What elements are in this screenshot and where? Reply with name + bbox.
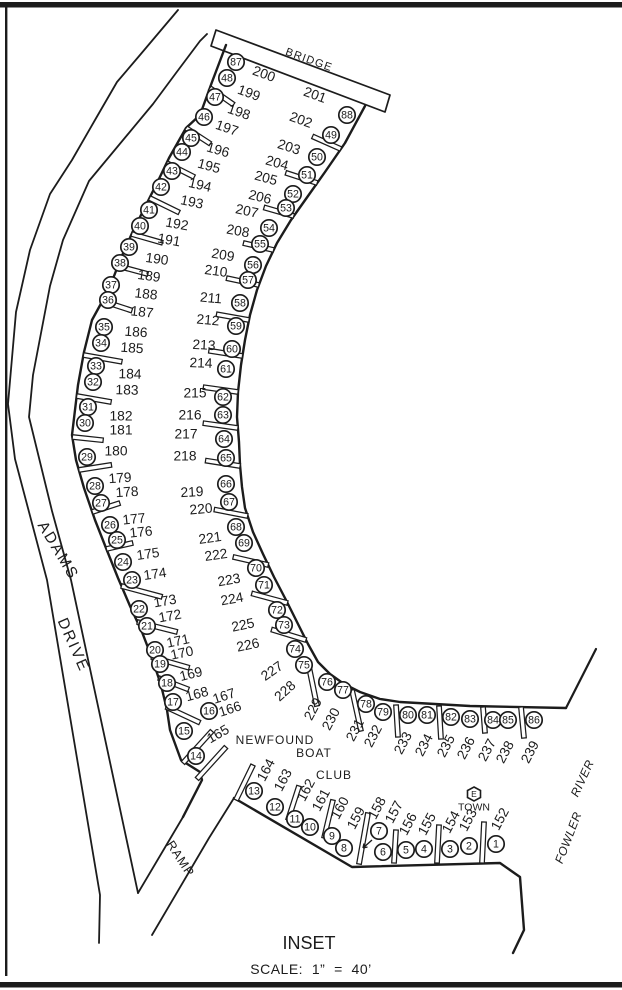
svg-text:68: 68: [230, 522, 242, 534]
svg-text:78: 78: [360, 699, 372, 711]
svg-text:58: 58: [234, 298, 246, 310]
svg-text:4: 4: [421, 844, 427, 856]
svg-text:16: 16: [203, 706, 215, 718]
svg-text:15: 15: [178, 726, 190, 738]
svg-text:CLUB: CLUB: [316, 768, 352, 782]
svg-text:28: 28: [89, 481, 101, 493]
svg-text:31: 31: [82, 402, 94, 414]
svg-text:77: 77: [337, 685, 349, 697]
svg-text:30: 30: [79, 418, 91, 430]
svg-text:214: 214: [189, 355, 213, 371]
svg-text:178: 178: [115, 484, 139, 501]
svg-text:43: 43: [166, 166, 178, 178]
svg-text:185: 185: [120, 340, 144, 357]
svg-text:180: 180: [104, 444, 127, 459]
svg-text:82: 82: [445, 712, 457, 724]
svg-text:12: 12: [269, 802, 281, 814]
svg-text:63: 63: [217, 410, 229, 422]
svg-text:36: 36: [102, 295, 114, 307]
svg-text:221: 221: [198, 529, 223, 547]
svg-text:69: 69: [238, 538, 250, 550]
svg-text:38: 38: [114, 258, 126, 270]
svg-text:86: 86: [528, 715, 540, 727]
svg-text:23: 23: [126, 575, 138, 587]
svg-text:50: 50: [311, 152, 323, 164]
svg-text:22: 22: [133, 604, 145, 616]
svg-text:72: 72: [271, 605, 283, 617]
svg-text:188: 188: [134, 285, 159, 302]
svg-text:83: 83: [464, 714, 476, 726]
svg-text:48: 48: [221, 73, 233, 85]
svg-text:79: 79: [377, 707, 389, 719]
svg-text:182: 182: [109, 409, 132, 424]
svg-text:183: 183: [115, 382, 139, 397]
svg-text:54: 54: [263, 223, 275, 235]
svg-text:212: 212: [196, 312, 220, 329]
svg-text:217: 217: [174, 427, 197, 442]
svg-text:59: 59: [230, 321, 242, 333]
svg-text:47: 47: [209, 92, 221, 104]
svg-text:17: 17: [167, 697, 179, 709]
svg-text:55: 55: [254, 239, 266, 251]
svg-text:14: 14: [190, 751, 202, 763]
svg-text:216: 216: [178, 408, 201, 423]
svg-text:52: 52: [287, 189, 299, 201]
svg-text:27: 27: [95, 498, 107, 510]
svg-text:33: 33: [90, 361, 102, 373]
svg-text:71: 71: [258, 580, 270, 592]
svg-text:85: 85: [502, 715, 514, 727]
svg-text:184: 184: [118, 366, 142, 381]
svg-text:60: 60: [226, 344, 238, 356]
svg-text:81: 81: [421, 710, 433, 722]
svg-text:218: 218: [173, 449, 196, 464]
svg-text:213: 213: [192, 337, 216, 353]
svg-text:187: 187: [130, 303, 154, 320]
svg-text:13: 13: [248, 786, 260, 798]
svg-text:6: 6: [380, 847, 386, 859]
svg-text:37: 37: [105, 280, 117, 292]
svg-text:181: 181: [109, 423, 132, 438]
svg-text:88: 88: [341, 110, 353, 122]
svg-text:80: 80: [402, 710, 414, 722]
svg-text:64: 64: [218, 434, 230, 446]
svg-text:1: 1: [493, 839, 499, 851]
svg-text:211: 211: [199, 290, 222, 307]
svg-text:3: 3: [447, 844, 453, 856]
svg-text:19: 19: [154, 659, 166, 671]
svg-text:76: 76: [321, 677, 333, 689]
svg-text:73: 73: [278, 620, 290, 632]
svg-text:70: 70: [250, 563, 262, 575]
svg-text:32: 32: [87, 377, 99, 389]
svg-text:25: 25: [111, 535, 123, 547]
svg-text:45: 45: [185, 133, 197, 145]
svg-text:87: 87: [230, 57, 242, 69]
svg-text:44: 44: [176, 147, 188, 159]
svg-text:46: 46: [198, 112, 210, 124]
svg-text:BOAT: BOAT: [296, 746, 332, 760]
svg-text:74: 74: [289, 644, 301, 656]
svg-text:220: 220: [189, 500, 214, 517]
svg-text:26: 26: [104, 520, 116, 532]
svg-text:219: 219: [180, 484, 204, 500]
svg-text:176: 176: [129, 523, 154, 540]
svg-text:65: 65: [220, 453, 232, 465]
svg-text:SCALE: 1” = 40’: SCALE: 1” = 40’: [250, 961, 371, 977]
svg-text:20: 20: [149, 645, 161, 657]
svg-text:215: 215: [183, 386, 206, 401]
svg-text:11: 11: [290, 814, 301, 826]
svg-text:7: 7: [376, 826, 382, 838]
svg-text:51: 51: [301, 170, 313, 182]
svg-text:42: 42: [155, 182, 167, 194]
svg-text:2: 2: [466, 841, 472, 853]
svg-text:34: 34: [95, 338, 107, 350]
svg-text:INSET: INSET: [282, 933, 335, 953]
svg-text:75: 75: [298, 660, 310, 672]
svg-text:39: 39: [123, 242, 135, 254]
svg-text:49: 49: [325, 130, 337, 142]
svg-text:8: 8: [341, 843, 347, 855]
svg-text:186: 186: [124, 324, 148, 341]
svg-text:66: 66: [220, 479, 232, 491]
svg-text:53: 53: [280, 203, 292, 215]
svg-text:E: E: [471, 789, 477, 799]
svg-text:84: 84: [487, 715, 499, 727]
svg-text:57: 57: [242, 275, 254, 287]
svg-text:62: 62: [217, 392, 229, 404]
svg-text:41: 41: [143, 205, 155, 217]
svg-text:67: 67: [223, 497, 235, 509]
svg-text:5: 5: [403, 845, 409, 857]
svg-text:21: 21: [141, 621, 153, 633]
svg-text:222: 222: [204, 546, 229, 564]
svg-text:18: 18: [161, 678, 173, 690]
svg-text:61: 61: [220, 364, 232, 376]
svg-text:9: 9: [329, 831, 335, 843]
svg-text:29: 29: [81, 452, 93, 464]
svg-text:56: 56: [247, 260, 259, 272]
svg-text:40: 40: [134, 221, 146, 233]
svg-text:NEWFOUND: NEWFOUND: [236, 733, 315, 747]
svg-text:TOWN: TOWN: [458, 802, 490, 814]
svg-text:24: 24: [117, 557, 129, 569]
svg-text:35: 35: [98, 322, 110, 334]
svg-text:10: 10: [304, 822, 316, 834]
